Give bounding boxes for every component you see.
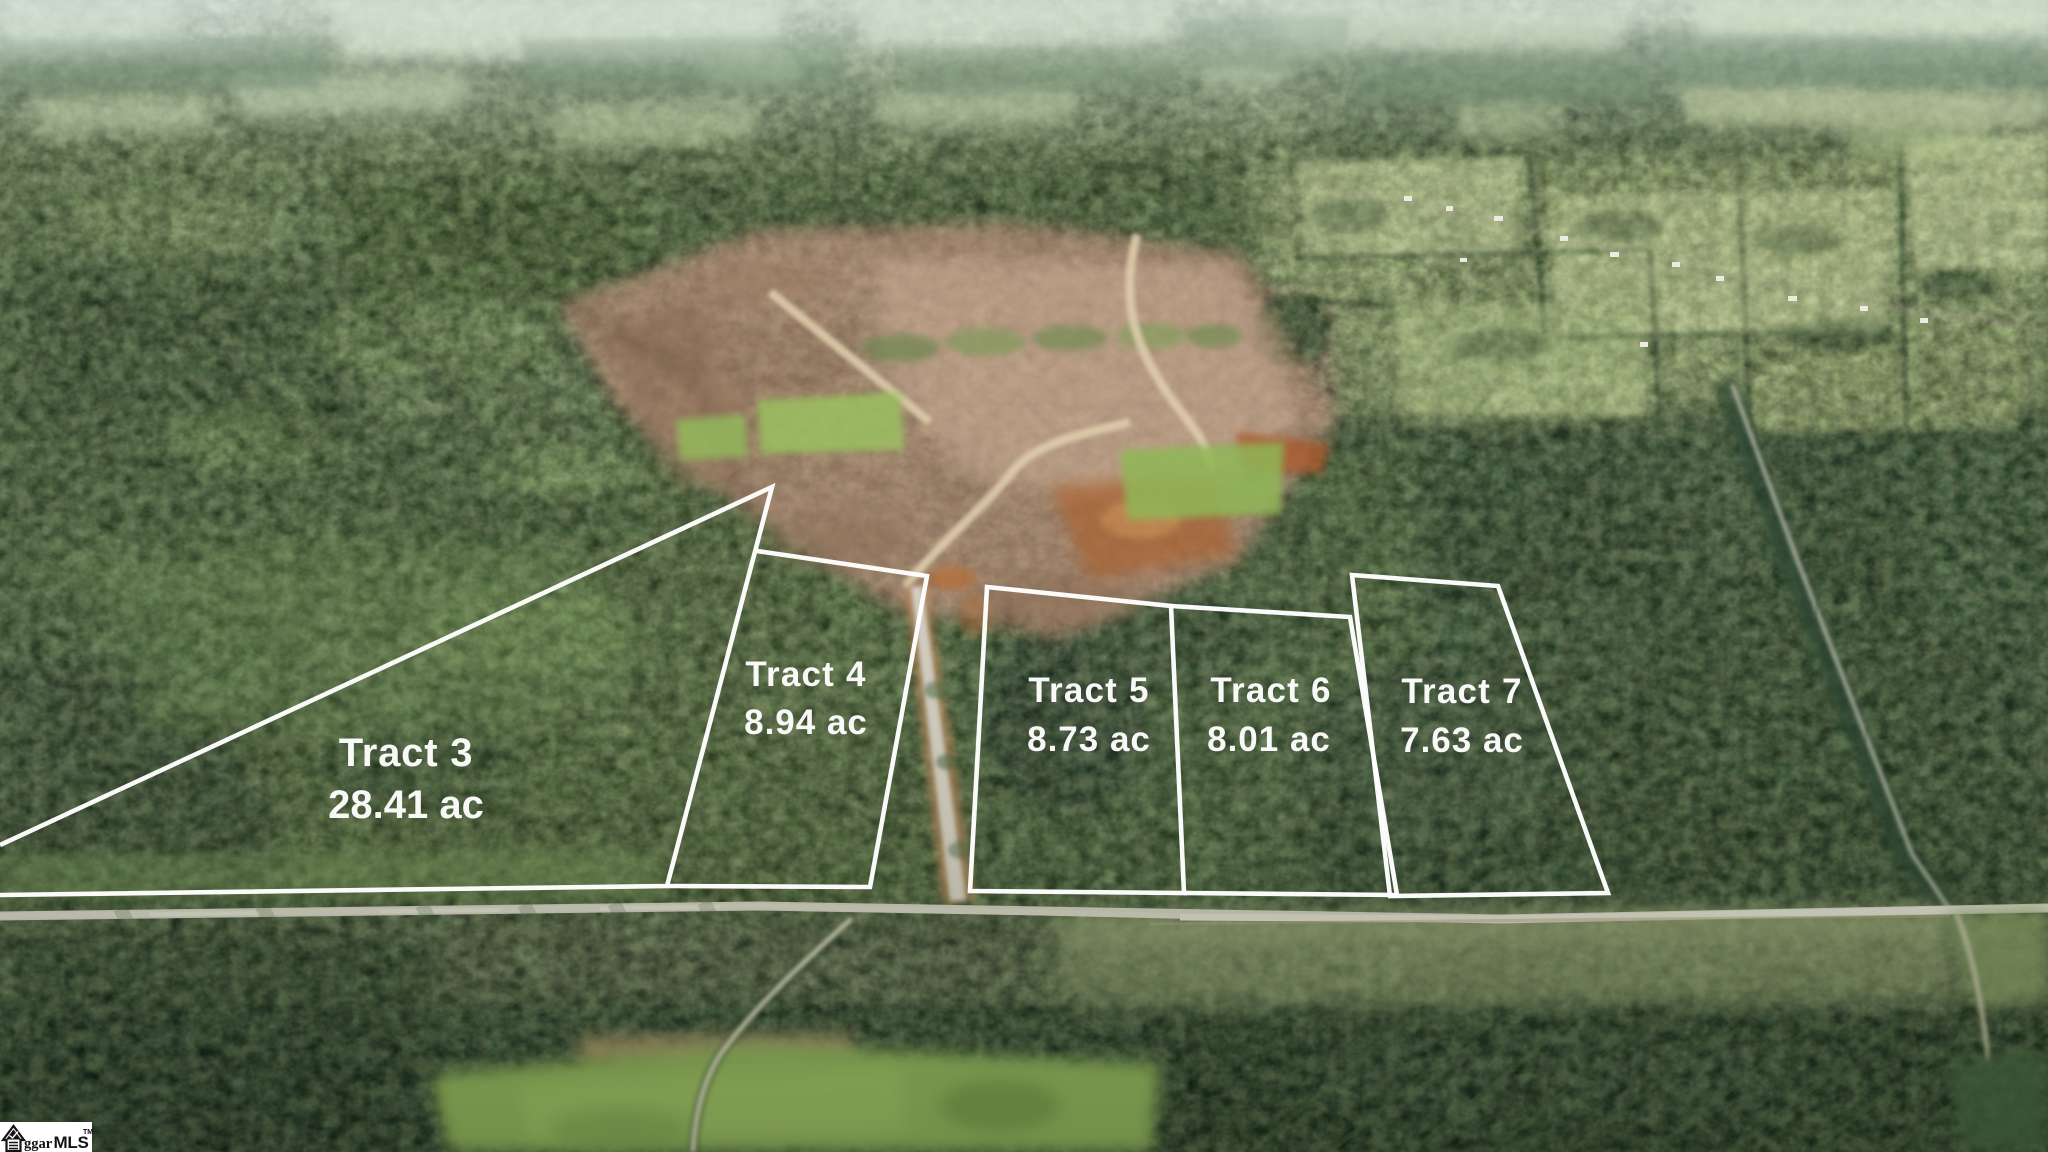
svg-text:Tract 4: Tract 4 bbox=[745, 655, 866, 694]
svg-text:7.63 ac: 7.63 ac bbox=[1400, 721, 1524, 760]
svg-text:Tract 3: Tract 3 bbox=[339, 731, 474, 775]
svg-text:Tract 5: Tract 5 bbox=[1028, 671, 1149, 710]
svg-text:ggar: ggar bbox=[24, 1136, 53, 1152]
svg-text:8.73 ac: 8.73 ac bbox=[1027, 720, 1151, 759]
svg-text:TM: TM bbox=[83, 1129, 93, 1136]
svg-text:Tract 7: Tract 7 bbox=[1401, 672, 1522, 711]
svg-text:28.41 ac: 28.41 ac bbox=[328, 783, 484, 827]
svg-text:8.01 ac: 8.01 ac bbox=[1207, 720, 1331, 759]
svg-text:Tract 6: Tract 6 bbox=[1210, 671, 1331, 710]
svg-text:8.94 ac: 8.94 ac bbox=[744, 703, 868, 742]
